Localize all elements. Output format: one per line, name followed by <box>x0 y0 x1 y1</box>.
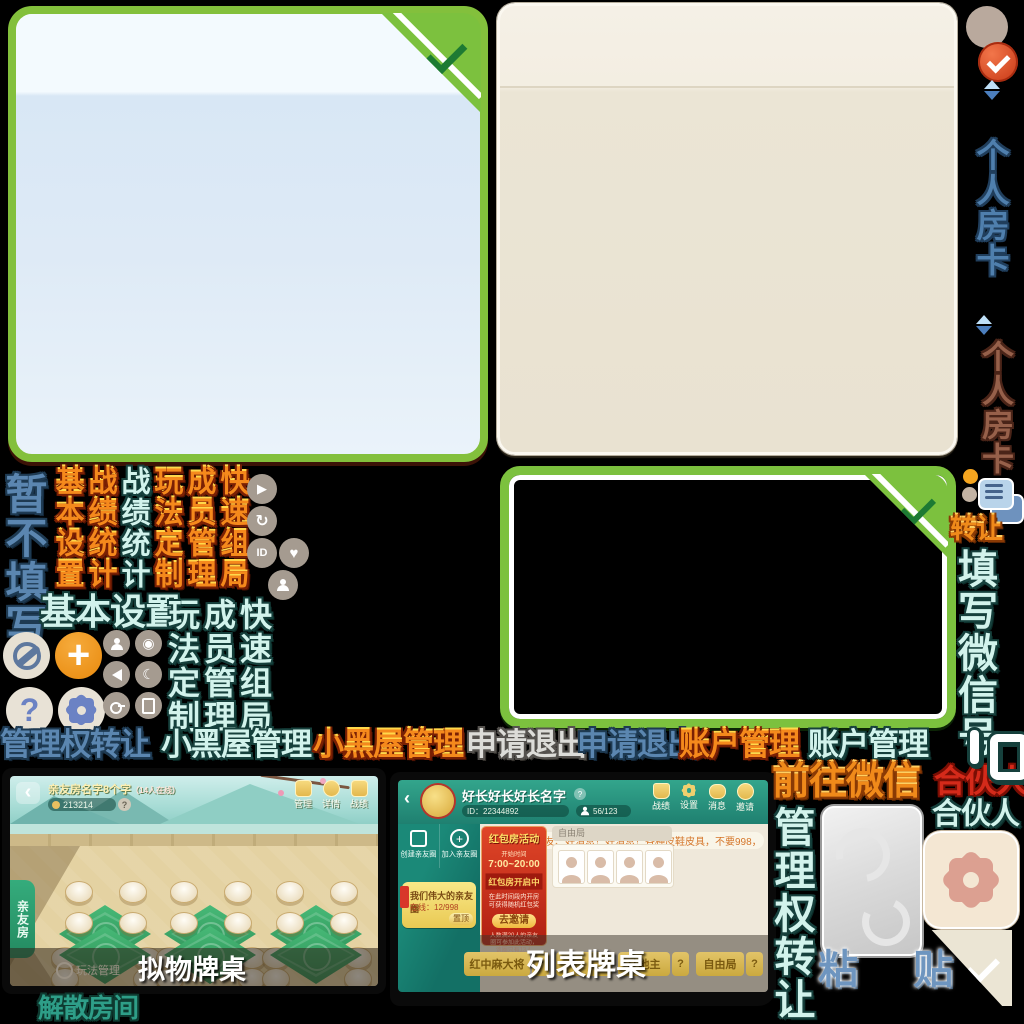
partner-label-cyan[interactable]: 合伙人 <box>932 800 1019 830</box>
banner-status: 红包房开启中 <box>486 873 543 889</box>
club-emblem-icon <box>422 785 454 817</box>
beige-dot <box>962 487 977 502</box>
screenshot2-header: ‹ 好长好长好长名字 ? ID：22344892 56/123 战绩 设置 <box>398 780 768 824</box>
tab-hongzhong[interactable]: 红中麻大将 <box>464 952 530 976</box>
banner-title: 红包房活动 <box>485 832 544 847</box>
orange-dot <box>963 469 978 484</box>
admin-transfer-vertical-label[interactable]: 管理权转让 <box>770 806 811 1021</box>
panel-beige-divider <box>500 86 954 88</box>
stats-label-cyan[interactable]: 战绩统计 <box>118 466 147 590</box>
blackroom-manage-label-cyan[interactable]: 小黑屋管理 <box>161 729 311 760</box>
hot-tag <box>400 886 409 908</box>
card-icon[interactable] <box>135 692 162 719</box>
play-icon[interactable]: ▶ <box>247 474 277 504</box>
screenshot2-caption: 列表牌桌 <box>526 940 646 984</box>
history-icon[interactable]: ↻ <box>247 506 277 536</box>
room-name: 亲友房名字8个字 <box>48 784 131 796</box>
moon-icon[interactable]: ☾ <box>135 661 162 688</box>
screenshot1-content: ‹ 亲友房名字8个字（14人在线） 213214 ? 管理 详情 <box>10 776 378 986</box>
play-custom-label-cyan[interactable]: 玩法定制 <box>166 598 198 734</box>
check-icon <box>900 489 936 525</box>
member-count-pill: 56/123 <box>576 805 631 817</box>
wall-strip <box>10 834 378 846</box>
account-manage-label-red[interactable]: 账户管理 <box>679 729 799 760</box>
blackroom-manage-label-red[interactable]: 小黑屋管理 <box>313 729 463 760</box>
banner-time: 7:00~20:00 <box>482 859 546 870</box>
blossom <box>278 790 284 796</box>
header-button-manage[interactable]: 管理 <box>290 780 316 810</box>
skin-option-realistic[interactable]: ‹ 亲友房名字8个字（14人在线） 213214 ? 管理 详情 <box>2 768 386 994</box>
dialog-panel-frame[interactable] <box>500 466 956 728</box>
fold-stripe <box>857 454 950 547</box>
back-button[interactable]: ‹ <box>16 782 40 804</box>
dialog-panel-beige[interactable] <box>497 3 957 455</box>
club-id: ID：22344892 <box>467 806 519 817</box>
mute-person-icon[interactable] <box>268 570 298 600</box>
header-button-invite[interactable]: 邀请 <box>374 780 378 810</box>
header-button-label: 战绩 <box>346 797 372 810</box>
settings-card-button[interactable] <box>925 833 1017 927</box>
selected-corner-fold[interactable] <box>864 474 948 558</box>
avatar-placeholder[interactable] <box>558 850 585 884</box>
banner-invite-button[interactable]: 去邀请 <box>492 914 536 928</box>
club-id-pill: ID：22344892 <box>462 805 569 817</box>
header-button-label: 战绩 <box>648 799 674 812</box>
skin-option-list[interactable]: ‹ 好长好长好长名字 ? ID：22344892 56/123 战绩 设置 <box>390 772 776 1006</box>
header-button-message[interactable]: 消息 <box>704 783 730 812</box>
paste-label[interactable]: 粘 贴 <box>818 950 975 990</box>
basic-settings-label-cyan[interactable]: 基本设置 <box>40 594 180 630</box>
screenshot1-caption: 拟物牌桌 <box>138 948 246 986</box>
room-id: 213214 <box>63 800 93 810</box>
create-club-button[interactable]: 创建亲友圈 <box>398 824 440 868</box>
dialog-panel-blue[interactable] <box>8 6 488 462</box>
stats-label-red[interactable]: 战绩统计 <box>85 466 114 590</box>
sort-arrows-icon[interactable] <box>984 80 1000 100</box>
header-button-label: 管理 <box>290 797 316 810</box>
confirm-check-button[interactable] <box>978 42 1018 82</box>
id-icon[interactable]: ID <box>247 538 277 568</box>
quit-apply-label-grey[interactable]: 申请退出 <box>466 729 586 760</box>
banner-desc: 在此时间段内开房可获得随机红包奖 <box>487 894 541 910</box>
admin-transfer-label[interactable]: 管理权转让 <box>0 729 150 760</box>
header-button-label: 详情 <box>318 797 344 810</box>
screenshot1-header: ‹ 亲友房名字8个字（14人在线） 213214 ? 管理 详情 <box>10 776 378 834</box>
join-club-label: 加入亲友圈 <box>441 850 478 860</box>
header-button-detail[interactable]: 详情 <box>318 780 344 810</box>
check-icon <box>986 49 1010 73</box>
play-custom-label-red[interactable]: 玩法定制 <box>151 466 180 590</box>
header-button-settings[interactable]: 设置 <box>676 783 702 811</box>
header-button-label: 邀请 <box>732 800 758 813</box>
account-manage-label-cyan[interactable]: 账户管理 <box>808 729 928 760</box>
person-icon[interactable] <box>103 630 130 657</box>
go-wechat-label[interactable]: 前往微信 <box>772 763 920 801</box>
personal-room-card-label-blue[interactable]: 个人房卡 <box>974 138 1007 278</box>
sort-arrows-icon[interactable] <box>976 315 992 335</box>
personal-room-card-label-brown[interactable]: 个人房卡 <box>980 340 1012 476</box>
avatar-placeholder[interactable] <box>616 850 643 884</box>
fill-wechat-label[interactable]: 填写微信号 <box>954 548 994 758</box>
key-icon[interactable] <box>103 692 130 719</box>
skip-fill-label[interactable]: 暂不填写 <box>2 472 44 648</box>
header-button-record[interactable]: 战绩 <box>648 783 674 812</box>
mahjong-tile-back[interactable] <box>822 806 922 956</box>
tab-help-button[interactable]: ? <box>746 952 763 976</box>
coin-icon <box>52 801 60 809</box>
header-button-record[interactable]: 战绩 <box>346 780 372 810</box>
dissolve-room-label[interactable]: 解散房间 <box>38 995 138 1021</box>
eye-icon[interactable]: ◉ <box>135 630 162 657</box>
join-club-button[interactable]: + 加入亲友圈 <box>439 824 480 868</box>
avatar-placeholder[interactable] <box>645 850 672 884</box>
help-mini-button[interactable]: ? <box>118 798 131 811</box>
edit-button[interactable] <box>3 632 50 679</box>
tab-help-button[interactable]: ? <box>672 952 689 976</box>
back-button[interactable]: ‹ <box>404 788 410 809</box>
free-mode-card <box>552 844 674 888</box>
water-band <box>10 824 378 834</box>
header-button-label: 邀请 <box>374 797 378 810</box>
add-button[interactable]: + <box>55 632 102 679</box>
redpacket-banner[interactable]: 红包房活动 开始时间 7:00~20:00 红包房开启中 在此时间段内开房可获得… <box>482 827 546 945</box>
room-online: （14人在线） <box>131 786 180 795</box>
header-button-label: 消息 <box>704 799 730 812</box>
tab-freemode[interactable]: 自由局 <box>696 952 744 976</box>
friend-room-tab-label: 亲友房 <box>17 900 29 939</box>
help-mini-button[interactable]: ? <box>574 788 586 800</box>
screenshot2-content: ‹ 好长好长好长名字 ? ID：22344892 56/123 战绩 设置 <box>398 780 768 992</box>
room-id-pill: 213214 <box>48 798 116 811</box>
quick-group-label-cyan[interactable]: 快速组局 <box>238 598 270 734</box>
club-card-online: 在线：12/998 <box>410 902 458 913</box>
pin-button[interactable]: 置顶 <box>449 913 473 925</box>
club-title: 好长好长好长名字 <box>462 786 566 805</box>
basic-settings-label-red[interactable]: 基本设置 <box>52 466 81 590</box>
header-button-label: 设置 <box>676 798 702 811</box>
megaphone-icon[interactable] <box>103 661 130 688</box>
header-button-invite[interactable]: 邀请 <box>732 783 758 813</box>
play-manage-entry[interactable]: 玩法管理 <box>76 962 120 978</box>
member-count: 56/123 <box>593 807 617 816</box>
member-manage-label-red[interactable]: 成员管理 <box>184 466 213 590</box>
avatar-placeholder[interactable] <box>587 850 614 884</box>
member-manage-label-cyan[interactable]: 成员管理 <box>202 598 234 734</box>
room-title: 亲友房名字8个字（14人在线） <box>48 781 180 797</box>
friend-room-tab[interactable]: 亲友房 <box>10 880 35 958</box>
club-card[interactable]: 我们伟大的亲友圈 在线：12/998 置顶 <box>402 882 476 928</box>
gear-mini-icon <box>56 962 73 979</box>
banner-time-label: 开始时间 <box>485 850 543 859</box>
glyph-logo-icon <box>966 728 1022 770</box>
free-mode-section-header: 自由局 <box>552 826 672 841</box>
transfer-label[interactable]: 转让 <box>950 516 1002 543</box>
heart-icon[interactable]: ♥ <box>279 538 309 568</box>
quick-group-label-red[interactable]: 快速组局 <box>217 466 246 590</box>
sprite-sheet: 个人房卡 个人房卡 转让 填写微信号 合伙人 合伙人 暂不填写 基本设置 战绩统… <box>0 0 1024 1024</box>
create-club-label: 创建亲友圈 <box>400 850 437 860</box>
